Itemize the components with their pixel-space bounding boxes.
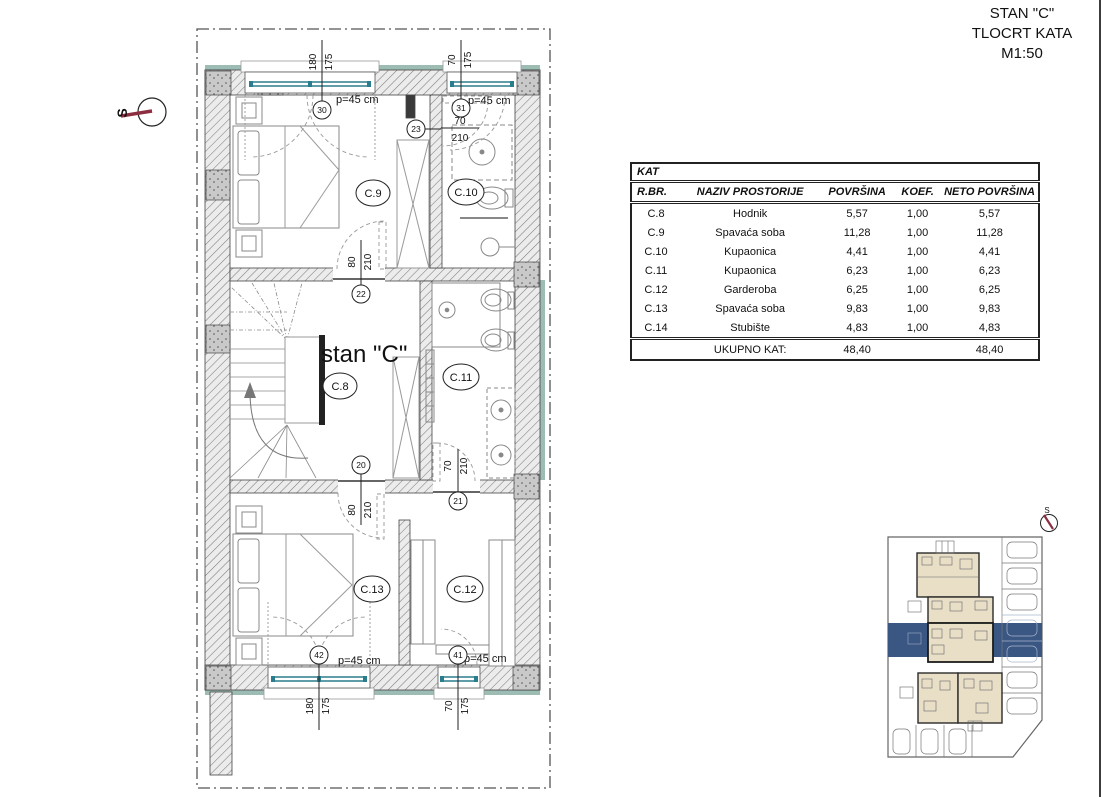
column-header-povrsina: POVRŠINA xyxy=(820,182,894,203)
ref-label: 21 xyxy=(453,496,463,506)
dim-text: 70 xyxy=(447,54,458,66)
dim-text: 70 xyxy=(443,460,454,472)
table-cell: 5,57 xyxy=(941,203,1039,224)
room-table-body: C.8Hodnik5,571,005,57C.9Spavaća soba11,2… xyxy=(631,203,1039,339)
compass-label: S xyxy=(114,108,130,117)
building-unit xyxy=(918,673,958,723)
column-header-neto: NETO POVRŠINA xyxy=(941,182,1039,203)
title-line-3: M1:50 xyxy=(948,44,1096,64)
room-label-c11: C.11 xyxy=(450,372,472,384)
floor-plan: S xyxy=(0,0,620,797)
table-cell: 11,28 xyxy=(941,223,1039,242)
table-row: C.14Stubište4,831,004,83 xyxy=(631,318,1039,339)
closet-x1 xyxy=(397,140,429,268)
table-cell: C.9 xyxy=(631,223,680,242)
parapet-label: p=45 cm xyxy=(468,95,511,107)
total-koef xyxy=(894,339,941,361)
ref-label: 41 xyxy=(453,650,463,660)
column-header-naziv: NAZIV PROSTORIJE xyxy=(680,182,820,203)
dim-text: 175 xyxy=(460,697,471,714)
table-cell: 9,83 xyxy=(941,299,1039,318)
table-cell: C.10 xyxy=(631,242,680,261)
dim-text: 175 xyxy=(324,53,335,70)
table-cell: Hodnik xyxy=(680,203,820,224)
room-label-c13: C.13 xyxy=(360,584,383,596)
total-label: UKUPNO KAT: xyxy=(680,339,820,361)
room-label-c9: C.9 xyxy=(364,188,381,200)
ref-label: 30 xyxy=(317,105,327,115)
table-cell: Garderoba xyxy=(680,280,820,299)
table-cell: C.13 xyxy=(631,299,680,318)
title-line-2: TLOCRT KATA xyxy=(948,24,1096,44)
bed-c13 xyxy=(233,506,353,665)
apartment-title: stan "C" xyxy=(321,341,407,368)
building-unit xyxy=(917,553,979,597)
site-north-label: S xyxy=(1044,506,1049,515)
room-label-c10: C.10 xyxy=(454,187,477,199)
dim-text: 180 xyxy=(305,697,316,714)
table-cell: C.14 xyxy=(631,318,680,339)
table-cell: 4,83 xyxy=(941,318,1039,339)
column-header-rbr: R.BR. xyxy=(631,182,680,203)
table-cell: 1,00 xyxy=(894,299,941,318)
table-cell: 1,00 xyxy=(894,261,941,280)
table-row: C.9Spavaća soba11,281,0011,28 xyxy=(631,223,1039,242)
table-cell: 6,23 xyxy=(941,261,1039,280)
table-cell: Kupaonica xyxy=(680,261,820,280)
table-row: C.11Kupaonica6,231,006,23 xyxy=(631,261,1039,280)
table-cell: C.11 xyxy=(631,261,680,280)
table-cell: 1,00 xyxy=(894,318,941,339)
table-cell: Kupaonica xyxy=(680,242,820,261)
table-cell: 4,41 xyxy=(941,242,1039,261)
parapet-label: p=45 cm xyxy=(336,94,379,106)
ref-label: 22 xyxy=(356,289,366,299)
stair-direction-arrow xyxy=(244,382,256,398)
table-row: C.8Hodnik5,571,005,57 xyxy=(631,203,1039,224)
table-total-row: UKUPNO KAT: 48,40 48,40 xyxy=(631,339,1039,361)
dim-text: 180 xyxy=(308,53,319,70)
table-cell: C.12 xyxy=(631,280,680,299)
staircase xyxy=(230,283,325,478)
title-block: STAN "C" TLOCRT KATA M1:50 xyxy=(948,4,1096,63)
table-row: C.10Kupaonica4,411,004,41 xyxy=(631,242,1039,261)
drawing-sheet: { "title_block": { "line1": "STAN \"C\""… xyxy=(0,0,1111,797)
table-cell: Spavaća soba xyxy=(680,299,820,318)
ref-label: 23 xyxy=(411,124,421,134)
table-row: C.12Garderoba6,251,006,25 xyxy=(631,280,1039,299)
table-title: KAT xyxy=(631,163,1039,182)
title-line-1: STAN "C" xyxy=(948,4,1096,24)
dim-text: 175 xyxy=(463,51,474,68)
total-empty xyxy=(631,339,680,361)
bed-c9 xyxy=(233,97,339,257)
table-row: C.13Spavaća soba9,831,009,83 xyxy=(631,299,1039,318)
table-cell: 1,00 xyxy=(894,203,941,224)
table-cell: 4,41 xyxy=(820,242,894,261)
site-plan: S xyxy=(880,505,1065,775)
washbasin-counter xyxy=(432,283,500,347)
dim-text: 210 xyxy=(363,501,374,518)
compass-north-indicator: S xyxy=(114,98,166,126)
table-cell: Stubište xyxy=(680,318,820,339)
table-cell: C.8 xyxy=(631,203,680,224)
dim-text: 210 xyxy=(363,253,374,270)
dim-text: 80 xyxy=(347,256,358,268)
parapet-label: p=45 cm xyxy=(464,653,507,665)
ref-label: 42 xyxy=(314,650,324,660)
building-unit xyxy=(958,673,1002,723)
total-povrsina: 48,40 xyxy=(820,339,894,361)
dim-text: 210 xyxy=(452,133,469,144)
table-cell: 4,83 xyxy=(820,318,894,339)
table-cell: 11,28 xyxy=(820,223,894,242)
dim-text: 70 xyxy=(444,700,455,712)
dim-text: 175 xyxy=(321,697,332,714)
table-cell: 1,00 xyxy=(894,223,941,242)
table-cell: 6,25 xyxy=(820,280,894,299)
table-cell: 6,25 xyxy=(941,280,1039,299)
dim-text: 80 xyxy=(347,504,358,516)
room-label-c8: C.8 xyxy=(331,381,348,393)
ref-label: 31 xyxy=(456,103,466,113)
ref-label: 20 xyxy=(356,460,366,470)
table-cell: 9,83 xyxy=(820,299,894,318)
table-cell: 1,00 xyxy=(894,280,941,299)
closet-x2 xyxy=(393,357,419,478)
chimney xyxy=(210,692,232,775)
sink-icon xyxy=(481,238,499,256)
table-cell: Spavaća soba xyxy=(680,223,820,242)
room-area-table: KAT R.BR. NAZIV PROSTORIJE POVRŠINA KOEF… xyxy=(630,162,1040,361)
site-north-indicator: S xyxy=(1041,506,1058,532)
parapet-label: p=45 cm xyxy=(338,655,381,667)
room-label-c12: C.12 xyxy=(453,584,476,596)
total-neto: 48,40 xyxy=(941,339,1039,361)
table-cell: 5,57 xyxy=(820,203,894,224)
dim-text: 70 xyxy=(454,116,466,127)
sheet-border-line xyxy=(1099,0,1101,797)
column-header-koef: KOEF. xyxy=(894,182,941,203)
dim-text: 210 xyxy=(459,457,470,474)
table-cell: 1,00 xyxy=(894,242,941,261)
table-cell: 6,23 xyxy=(820,261,894,280)
